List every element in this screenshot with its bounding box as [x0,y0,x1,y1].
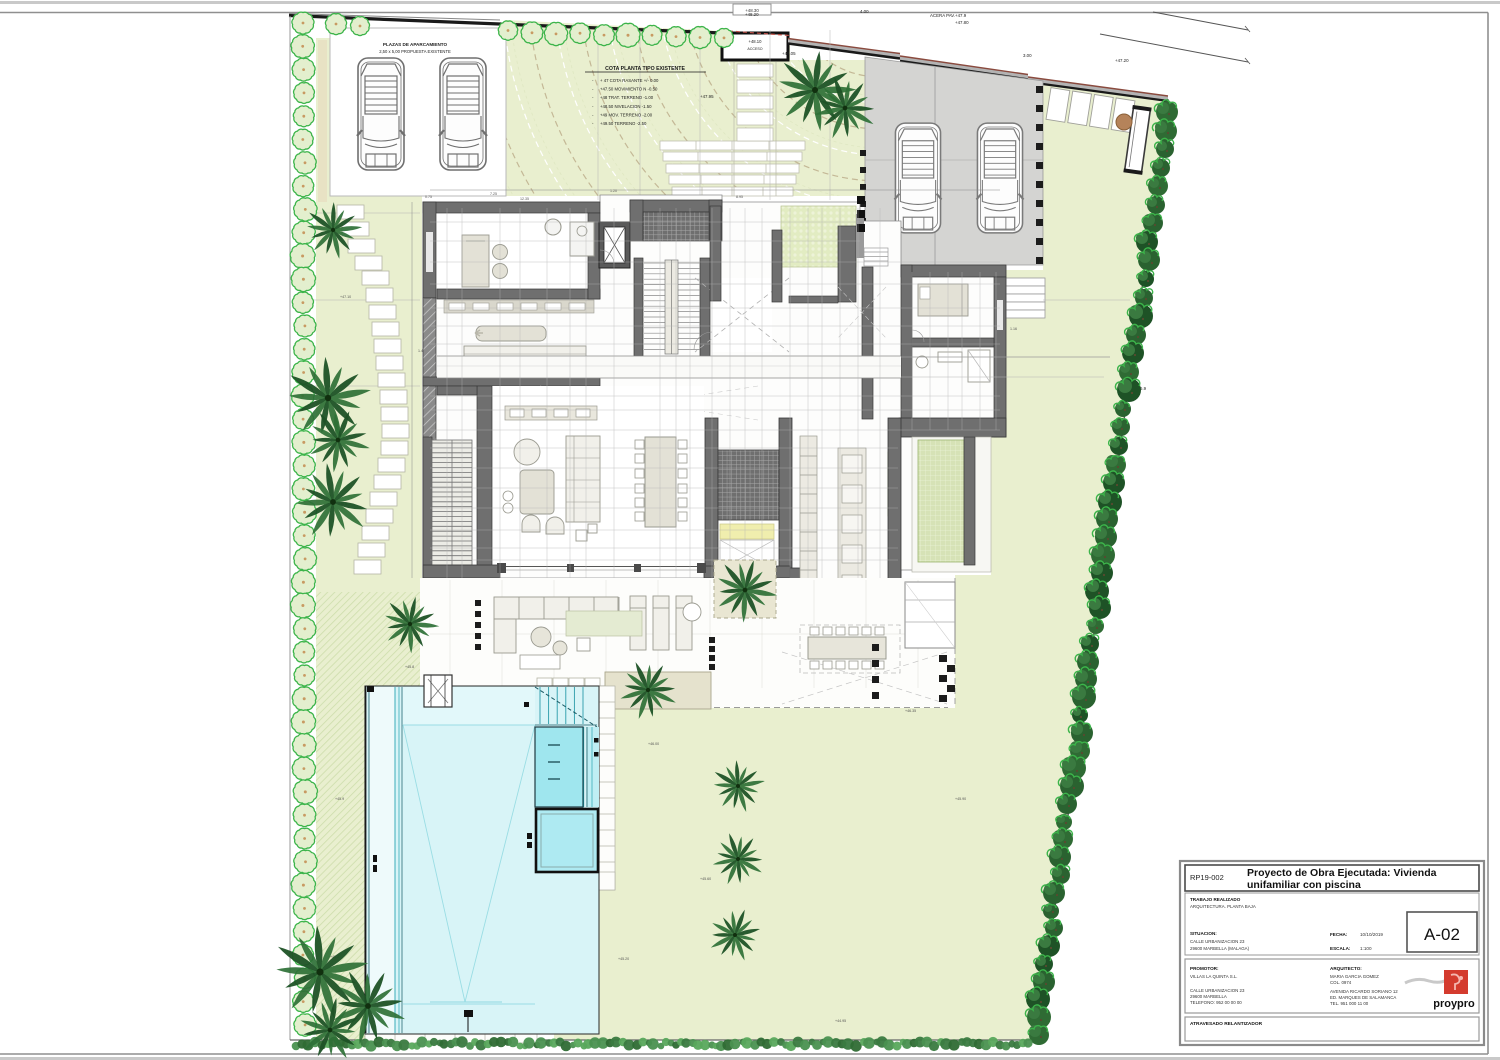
svg-text:10/10/2019: 10/10/2019 [1360,932,1383,937]
svg-text:3.00: 3.00 [1023,53,1032,58]
svg-text:unifamiliar con piscina: unifamiliar con piscina [1247,879,1361,891]
svg-text:+45.20: +45.20 [618,957,629,961]
svg-text:+47.20: +47.20 [1115,58,1129,63]
svg-text:PROMOTOR:: PROMOTOR: [1190,966,1219,971]
svg-text:+48.20: +48.20 [745,12,759,17]
svg-text:FECHA:: FECHA: [1330,932,1348,937]
svg-text:+47.80: +47.80 [955,20,969,25]
svg-text:+46.35: +46.35 [905,709,916,713]
svg-text:+ 47 COTA RASANTE +/- 0.00: + 47 COTA RASANTE +/- 0.00 [600,78,659,83]
svg-text:+48.50 NIVELACION -1.50: +48.50 NIVELACION -1.50 [600,104,652,109]
svg-text:29600 MARBELLA: 29600 MARBELLA [1190,994,1227,999]
svg-text:TELEFONO: 952 00 00 00: TELEFONO: 952 00 00 00 [1190,1000,1242,1005]
svg-text:ARQUITECTO:: ARQUITECTO: [1330,966,1362,971]
svg-text:+47.50 MOVIMIENTO N -0.50: +47.50 MOVIMIENTO N -0.50 [600,87,658,92]
svg-text:COTA PLANTA TIPO EXISTENTE: COTA PLANTA TIPO EXISTENTE [605,66,685,72]
svg-text:8.95: 8.95 [736,195,743,199]
svg-text:+46.00: +46.00 [648,742,659,746]
svg-text:+47.10: +47.10 [340,295,351,299]
svg-text:Proyecto de Obra Ejecutada: Vi: Proyecto de Obra Ejecutada: Vivienda [1247,867,1437,879]
svg-text:+45.9: +45.9 [335,797,344,801]
svg-text:RP19-002: RP19-002 [1190,873,1224,882]
svg-text:ESCALA:: ESCALA: [1330,946,1351,951]
svg-text:AVENIDA RICARDO SORIANO 12: AVENIDA RICARDO SORIANO 12 [1330,989,1398,994]
svg-text:4.00: 4.00 [860,9,869,14]
svg-text:A-02: A-02 [1424,925,1460,944]
svg-text:+49 MOV. TERRENO -2.00: +49 MOV. TERRENO -2.00 [600,112,653,117]
svg-text:PLAZAS DE APARCAMIENTO: PLAZAS DE APARCAMIENTO [383,42,448,47]
svg-text:CALLE URBANIZACION 23: CALLE URBANIZACION 23 [1190,939,1245,944]
svg-text:+48 TRAT. TERRENO -1.00: +48 TRAT. TERRENO -1.00 [600,95,654,100]
svg-text:ACERA PAV.+47.9: ACERA PAV.+47.9 [930,13,967,18]
svg-text:ATRAVESADO RELANTIZADOR: ATRAVESADO RELANTIZADOR [1190,1021,1263,1027]
svg-text:proypro: proypro [1433,998,1475,1010]
svg-text:0.75: 0.75 [425,195,432,199]
svg-text:+45.8: +45.8 [405,665,414,669]
svg-text:ED. MARQUES DE SALAMANCA: ED. MARQUES DE SALAMANCA [1330,995,1396,1000]
svg-text:ACCESO: ACCESO [747,47,762,51]
svg-text:+48.10: +48.10 [749,39,763,44]
svg-text:TEL. 951 000 11 00: TEL. 951 000 11 00 [1330,1001,1369,1006]
svg-text:7.25: 7.25 [490,192,497,196]
svg-text:TRABAJO REALIZADO: TRABAJO REALIZADO [1190,897,1241,902]
svg-text:ARQUITECTURA. PLANTA BAJA: ARQUITECTURA. PLANTA BAJA [1190,904,1256,909]
svg-text:+49.50 TERRENO -2.50: +49.50 TERRENO -2.50 [600,121,647,126]
svg-text:+44.95: +44.95 [835,1019,846,1023]
svg-text:+47.95: +47.95 [700,94,714,99]
svg-text:12.35: 12.35 [520,197,529,201]
svg-text:+45.90: +45.90 [955,797,966,801]
svg-text:1:100: 1:100 [1360,946,1372,951]
svg-text:+48.05: +48.05 [782,51,796,56]
svg-text:MARIA GARCIA GOMEZ: MARIA GARCIA GOMEZ [1330,974,1379,979]
svg-text:+45.60: +45.60 [700,877,711,881]
svg-text:1.16: 1.16 [1010,327,1017,331]
svg-text:SITUACION:: SITUACION: [1190,931,1217,936]
svg-text:VILLAS LA QUINTA S.L.: VILLAS LA QUINTA S.L. [1190,974,1238,979]
svg-text:COL. 0974: COL. 0974 [1330,980,1352,985]
svg-text:29600 MARBELLA (MALAGA): 29600 MARBELLA (MALAGA) [1190,946,1250,951]
svg-text:1.20: 1.20 [610,189,617,193]
svg-text:2,50 x 5,00 PROPUESTA EXISTENT: 2,50 x 5,00 PROPUESTA EXISTENTE [379,49,451,54]
svg-text:CALLE URBANIZACION 23: CALLE URBANIZACION 23 [1190,988,1245,993]
